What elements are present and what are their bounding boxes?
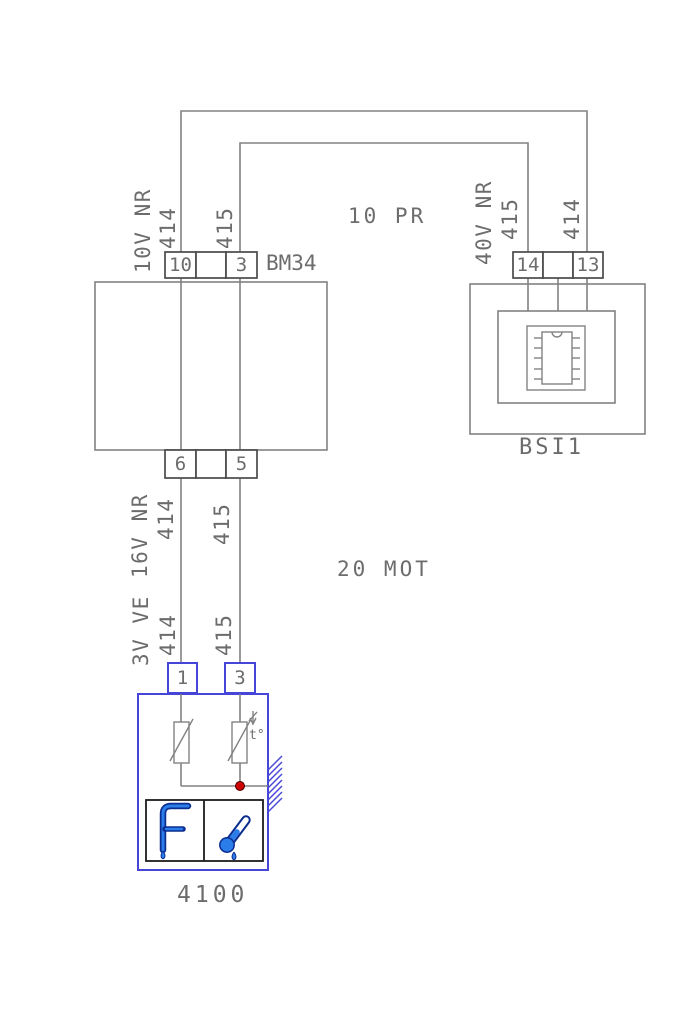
bm34-label: BM34: [266, 253, 317, 274]
harness-label-bm34-top: 10V NR: [133, 188, 154, 273]
wire-number-bm34-bottom-right: 415: [212, 503, 233, 545]
wire-number-bm34-top-left: 414: [158, 207, 179, 249]
bsi1-label: BSI1: [519, 437, 584, 459]
harness-label-sensor-top: 3V VE: [131, 595, 152, 666]
bm34-pin-6: 6: [165, 450, 196, 478]
zone-label-10pr: 10 PR: [348, 206, 426, 227]
thermistor-temperature-note: t°: [249, 729, 265, 742]
wire-number-bsi1-right: 414: [562, 198, 583, 240]
harness-label-bsi1: 40V NR: [474, 180, 495, 265]
wiring-diagram-page: 10V NR 414 415 40V NR 415 414 16V NR 414…: [0, 0, 700, 1020]
bm34-pin-10: 10: [165, 252, 196, 278]
sensor-4100-function-icons: [146, 800, 263, 861]
wiring-diagram-canvas: [0, 0, 700, 1020]
splice-junction-dot: [236, 782, 245, 791]
bm34-pin-3: 3: [226, 252, 257, 278]
wire-number-sensor-right: 415: [214, 614, 235, 656]
wire-number-bsi1-left: 415: [500, 198, 521, 240]
zone-label-20mot: 20 MOT: [337, 559, 431, 580]
harness-label-bm34-bottom: 16V NR: [130, 493, 151, 578]
bsi1-pin-13: 13: [573, 252, 603, 278]
sensor-4100-label: 4100: [177, 884, 248, 907]
bm34-pin-5: 5: [226, 450, 257, 478]
bsi1-pin-14: 14: [513, 252, 543, 278]
wire-number-bm34-bottom-left: 414: [156, 498, 177, 540]
chassis-ground-icon: [268, 756, 282, 812]
sensor-4100-pin-1: 1: [168, 663, 197, 693]
wire-number-bm34-top-right: 415: [215, 207, 236, 249]
wire-number-sensor-left: 414: [158, 614, 179, 656]
sensor-4100-pin-3: 3: [225, 663, 255, 693]
bm34-box: [95, 282, 327, 450]
